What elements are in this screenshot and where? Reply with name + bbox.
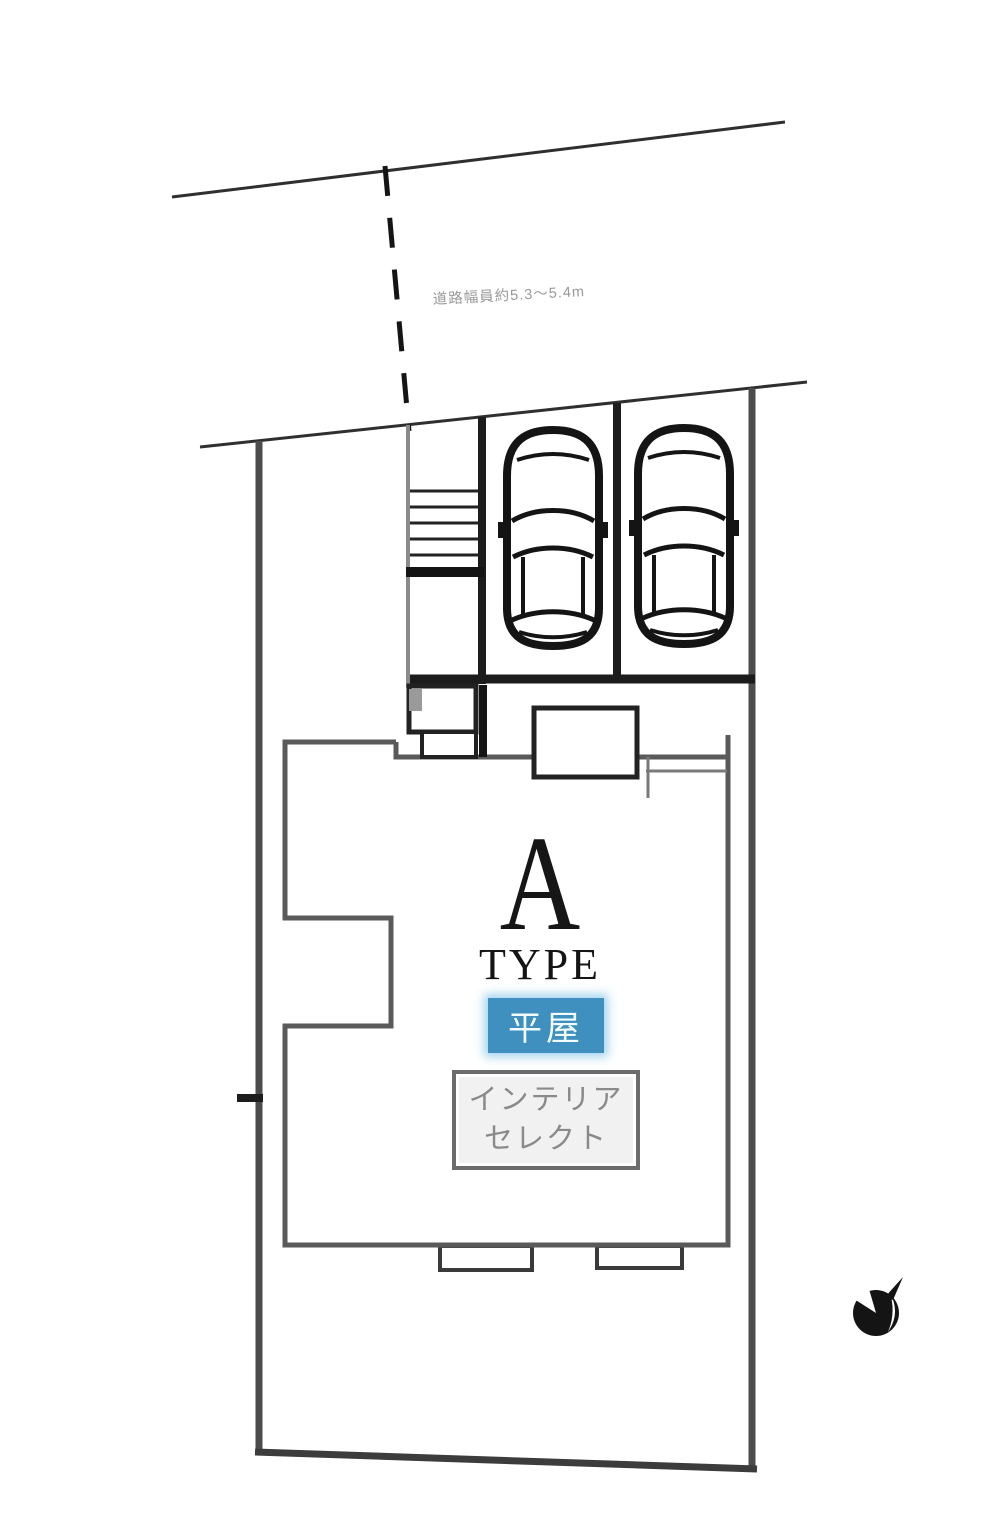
road-lines: 道路幅員約5.3〜5.4m <box>172 122 807 447</box>
interior-select-line2: セレクト <box>484 1120 608 1159</box>
site-plan-drawing: 道路幅員約5.3〜5.4m <box>0 0 1000 1519</box>
entrance-lower-step <box>422 732 476 757</box>
unit-type-word: TYPE <box>440 943 640 987</box>
terrace-step-left <box>440 1246 532 1270</box>
car-top-view-icon <box>629 428 739 644</box>
road-center-dashed-line <box>385 166 409 431</box>
single-story-badge: 平屋 <box>488 998 604 1053</box>
interior-partition <box>646 757 727 798</box>
upper-road-edge-line <box>172 122 785 197</box>
stair-treads <box>410 491 479 555</box>
stairs <box>406 425 484 688</box>
entrance-porch <box>534 708 637 777</box>
interior-select-box: インテリア セレクト <box>452 1070 640 1170</box>
plot-boundary-bottom <box>255 1452 757 1469</box>
compass-north-icon <box>851 1277 903 1336</box>
interior-select-line1: インテリア <box>468 1081 623 1120</box>
entrance-step-pad <box>409 689 422 711</box>
site-plan-canvas: 道路幅員約5.3〜5.4m <box>0 0 1000 1519</box>
road-width-label: 道路幅員約5.3〜5.4m <box>432 283 585 308</box>
terrace-step-right <box>597 1246 682 1268</box>
unit-type-letter: A <box>458 816 622 952</box>
car-top-view-icon <box>498 430 608 646</box>
